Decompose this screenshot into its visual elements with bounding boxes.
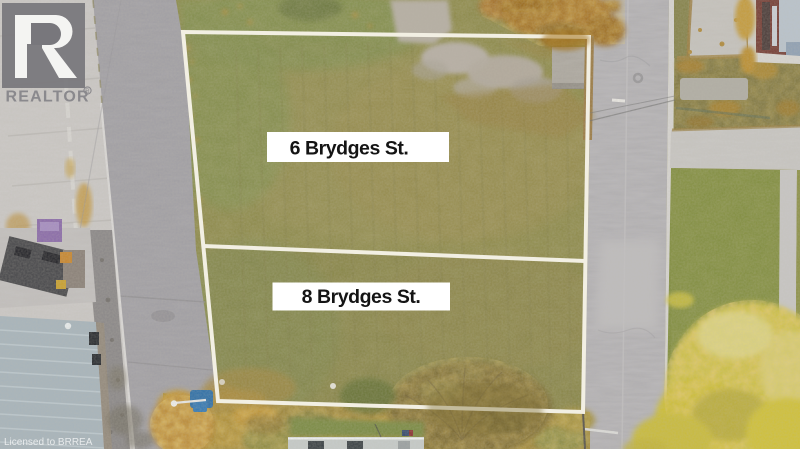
svg-text:R: R [85,89,90,95]
svg-text:REALTOR: REALTOR [6,89,90,106]
svg-text:Licensed to BRREA: Licensed to BRREA [4,437,93,448]
svg-text:8 Brydges St.: 8 Brydges St. [302,286,421,308]
svg-text:6 Brydges St.: 6 Brydges St. [290,138,409,160]
